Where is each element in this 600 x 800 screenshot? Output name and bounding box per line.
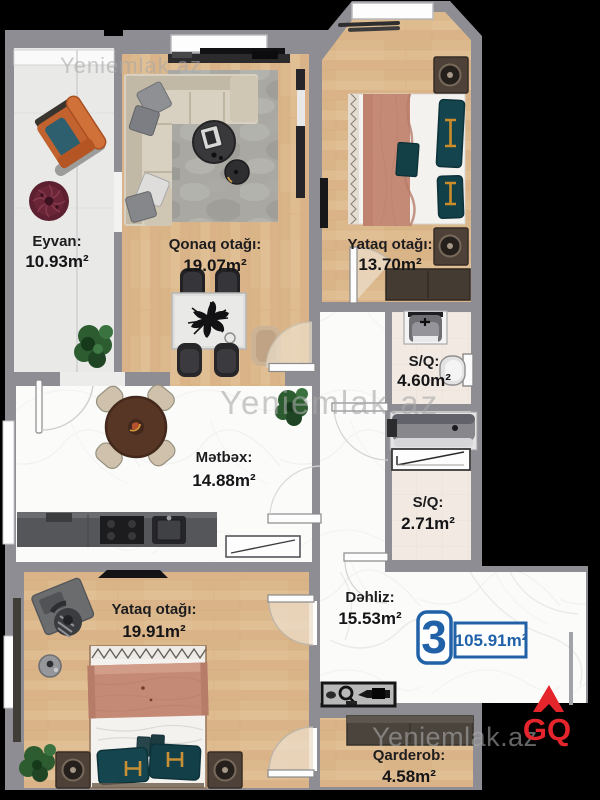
svg-text:105.91m²: 105.91m² — [455, 631, 528, 650]
svg-text:19.07m²: 19.07m² — [183, 256, 247, 275]
svg-text:15.53m²: 15.53m² — [338, 609, 402, 628]
svg-text:Yataq otağı:: Yataq otağı: — [111, 601, 196, 618]
svg-text:4.58m²: 4.58m² — [382, 767, 436, 786]
svg-text:Eyvan:: Eyvan: — [32, 233, 81, 250]
svg-text:13.70m²: 13.70m² — [358, 255, 422, 274]
svg-text:Yataq otağı:: Yataq otağı: — [347, 236, 432, 253]
svg-text:19.91m²: 19.91m² — [122, 622, 186, 641]
svg-text:3: 3 — [421, 611, 447, 663]
svg-text:Dəhliz:: Dəhliz: — [345, 589, 394, 606]
svg-text:GQ: GQ — [523, 712, 571, 747]
svg-text:Mətbəx:: Mətbəx: — [196, 449, 253, 466]
svg-text:10.93m²: 10.93m² — [25, 252, 89, 271]
svg-text:Qonaq otağı:: Qonaq otağı: — [169, 236, 262, 253]
svg-text:Yeniemlak.az: Yeniemlak.az — [220, 384, 439, 421]
svg-text:14.88m²: 14.88m² — [192, 471, 256, 490]
svg-text:S/Q:: S/Q: — [409, 353, 440, 370]
svg-text:S/Q:: S/Q: — [413, 494, 444, 511]
svg-text:2.71m²: 2.71m² — [401, 514, 455, 533]
svg-text:Yeniemlak.az: Yeniemlak.az — [60, 53, 202, 78]
svg-text:Yeniemlak.az: Yeniemlak.az — [372, 722, 538, 752]
